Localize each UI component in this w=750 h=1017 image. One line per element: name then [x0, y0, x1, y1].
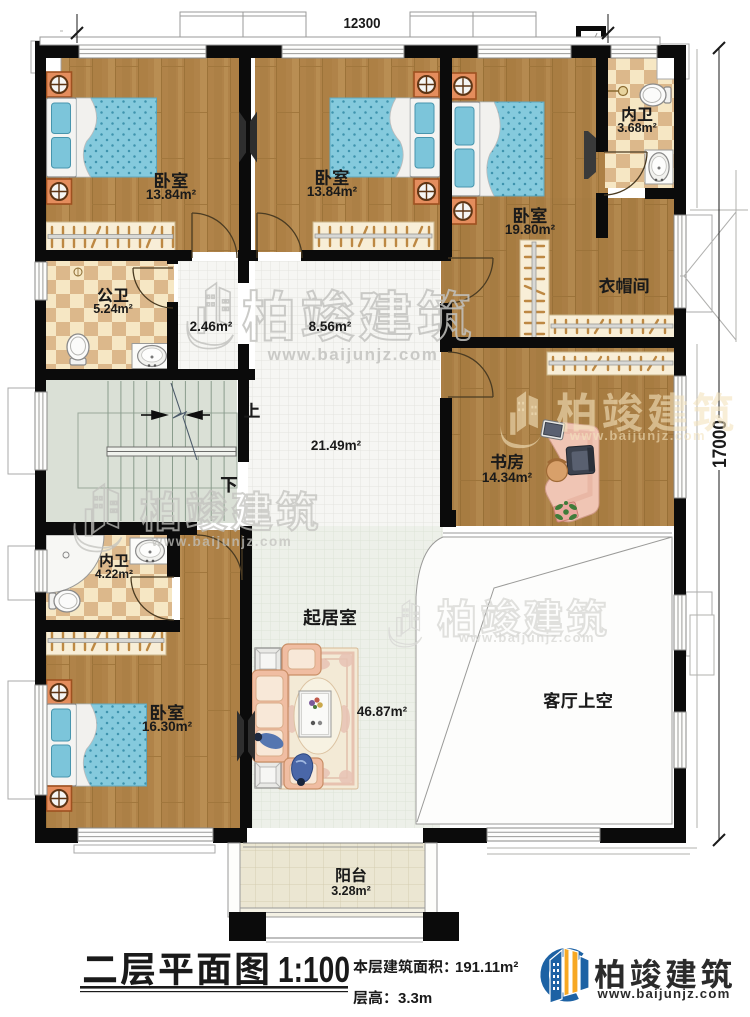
svg-text:5.24m²: 5.24m²	[93, 302, 133, 316]
svg-text:www.baijunjz.com: www.baijunjz.com	[267, 345, 439, 364]
svg-text:21.49m²: 21.49m²	[311, 438, 362, 453]
svg-text:46.87m²: 46.87m²	[357, 704, 408, 719]
svg-text:www.baijunjz.com: www.baijunjz.com	[458, 630, 595, 645]
svg-text:3.3m: 3.3m	[398, 990, 432, 1007]
svg-text:www.baijunjz.com: www.baijunjz.com	[569, 428, 706, 443]
svg-text:8.56m²: 8.56m²	[309, 319, 352, 334]
svg-text:14.34m²: 14.34m²	[482, 470, 533, 485]
svg-text:4.22m²: 4.22m²	[95, 567, 133, 581]
svg-text:2.46m²: 2.46m²	[190, 319, 233, 334]
svg-text:www.baijunjz.com: www.baijunjz.com	[596, 986, 730, 1001]
svg-text:191.11m²: 191.11m²	[455, 959, 518, 976]
svg-text:19.80m²: 19.80m²	[505, 222, 556, 237]
svg-text:12300: 12300	[344, 15, 381, 32]
svg-text:13.84m²: 13.84m²	[307, 184, 358, 199]
svg-text:13.84m²: 13.84m²	[146, 187, 197, 202]
svg-text:16.30m²: 16.30m²	[142, 719, 193, 734]
svg-text:www.baijunjz.com: www.baijunjz.com	[151, 534, 293, 549]
svg-text:3.28m²: 3.28m²	[331, 884, 371, 898]
svg-text:1:100: 1:100	[278, 949, 350, 990]
svg-text:3.68m²: 3.68m²	[617, 121, 657, 135]
